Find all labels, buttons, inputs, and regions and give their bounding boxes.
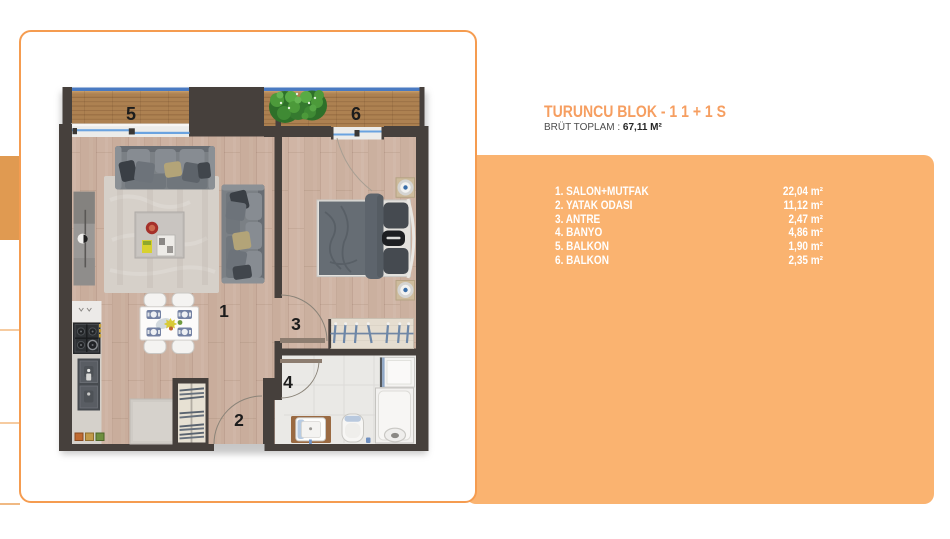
svg-text:6: 6	[351, 104, 361, 124]
svg-text:3: 3	[291, 314, 301, 334]
svg-text:1: 1	[219, 301, 229, 321]
svg-text:4: 4	[283, 372, 293, 392]
svg-text:5: 5	[126, 104, 136, 124]
svg-text:2: 2	[234, 410, 244, 430]
